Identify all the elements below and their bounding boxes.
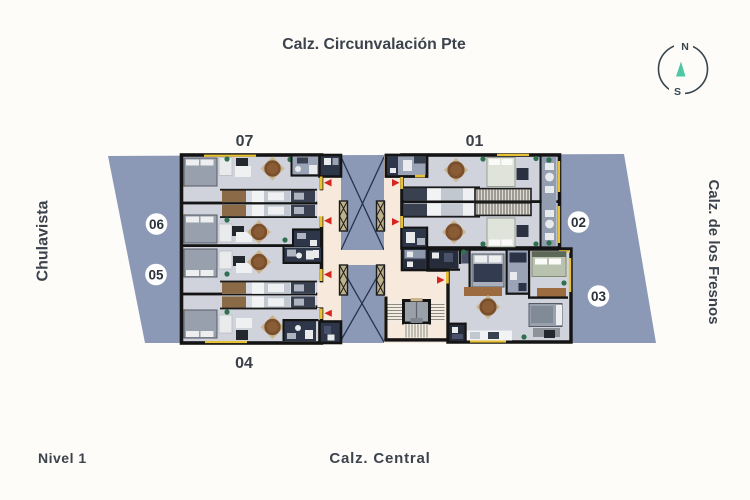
svg-text:Calz. Central: Calz. Central — [329, 450, 430, 467]
svg-text:06: 06 — [149, 217, 165, 232]
svg-text:03: 03 — [591, 289, 607, 304]
svg-text:07: 07 — [236, 133, 254, 150]
svg-text:S: S — [674, 86, 681, 98]
svg-text:05: 05 — [148, 267, 164, 282]
svg-text:04: 04 — [235, 355, 253, 372]
svg-text:N: N — [681, 41, 689, 53]
svg-text:01: 01 — [466, 133, 484, 150]
svg-text:Calz. de los Fresnos: Calz. de los Fresnos — [705, 179, 722, 324]
svg-text:Calz. Circunvalación Pte: Calz. Circunvalación Pte — [282, 36, 466, 53]
svg-text:Chulavista: Chulavista — [35, 200, 52, 281]
svg-text:Nivel 1: Nivel 1 — [38, 450, 87, 466]
svg-text:02: 02 — [571, 215, 586, 230]
